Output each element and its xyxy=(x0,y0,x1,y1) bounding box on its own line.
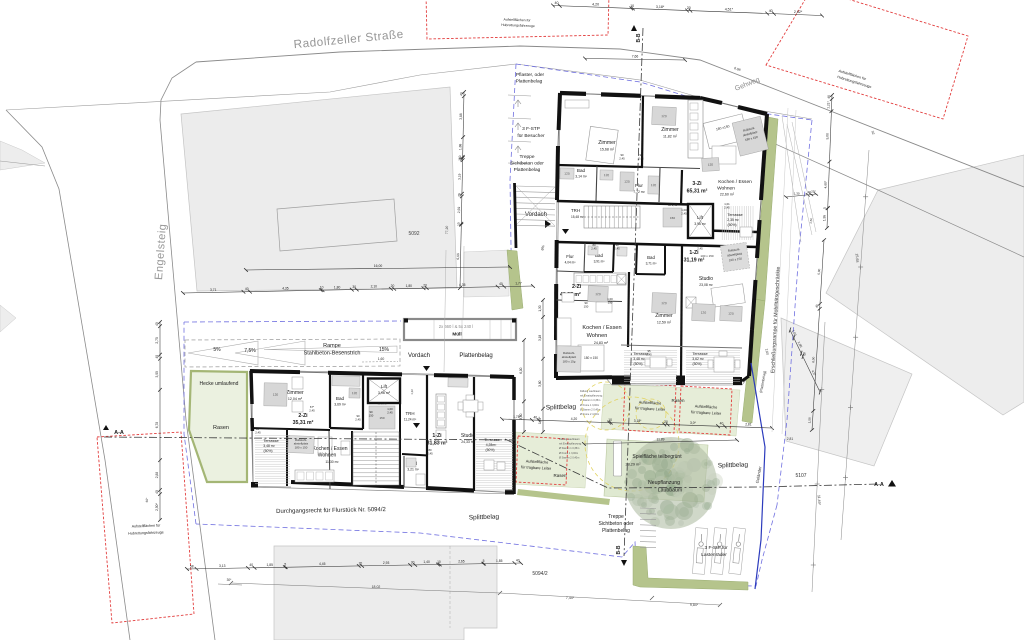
svg-text:A-A: A-A xyxy=(114,430,124,436)
svg-text:40: 40 xyxy=(815,304,819,308)
svg-text:100 x 150: 100 x 150 xyxy=(700,254,714,258)
svg-text:1-Zi: 1-Zi xyxy=(432,433,442,439)
svg-text:Neupflanzung: Neupflanzung xyxy=(648,480,680,486)
svg-text:3,00: 3,00 xyxy=(155,371,159,378)
svg-text:10: 10 xyxy=(320,286,324,290)
svg-text:11,49*: 11,49* xyxy=(817,495,822,506)
svg-text:16,00: 16,00 xyxy=(374,264,383,268)
svg-text:(50%): (50%) xyxy=(727,223,736,227)
svg-text:40: 40 xyxy=(249,563,253,567)
svg-text:5107: 5107 xyxy=(795,473,806,479)
svg-text:2,45: 2,45 xyxy=(255,430,261,434)
svg-text:11,24 m²: 11,24 m² xyxy=(404,418,416,422)
svg-text:120: 120 xyxy=(595,292,601,296)
svg-text:3,48 m²: 3,48 m² xyxy=(633,357,645,361)
svg-text:3,96 m²: 3,96 m² xyxy=(694,222,706,226)
svg-text:150: 150 xyxy=(379,416,384,420)
svg-text:Fällung Laubbaum: Fällung Laubbaum xyxy=(559,438,580,441)
svg-text:für Besucher: für Besucher xyxy=(517,133,545,139)
svg-text:7,5%: 7,5% xyxy=(244,348,256,354)
svg-text:Bad: Bad xyxy=(577,168,586,173)
svg-text:Terrasse: Terrasse xyxy=(692,351,708,356)
svg-text:12,59 m²: 12,59 m² xyxy=(657,321,672,325)
svg-text:4,45: 4,45 xyxy=(319,562,326,566)
svg-text:5%: 5% xyxy=(213,347,221,353)
svg-text:(50%): (50%) xyxy=(263,449,272,453)
svg-text:15%: 15% xyxy=(379,347,390,353)
svg-text:20: 20 xyxy=(359,561,363,565)
svg-text:Ø Stamm 2 0,40m: Ø Stamm 2 0,40m xyxy=(580,408,600,411)
svg-text:3,80: 3,80 xyxy=(538,380,542,386)
svg-text:35,31 m²: 35,31 m² xyxy=(293,420,314,426)
svg-text:150: 150 xyxy=(670,216,675,220)
svg-text:2,45: 2,45 xyxy=(309,408,315,412)
svg-text:3 F-STP: 3 F-STP xyxy=(522,126,540,132)
svg-text:40: 40 xyxy=(155,322,159,326)
svg-text:2,45: 2,45 xyxy=(619,156,625,160)
svg-text:1,30: 1,30 xyxy=(794,191,800,195)
svg-text:7,72 m²: 7,72 m² xyxy=(633,190,645,194)
svg-text:3 F-StP für: 3 F-StP für xyxy=(704,545,728,551)
svg-text:Wohnen: Wohnen xyxy=(717,186,735,192)
svg-text:B-B: B-B xyxy=(636,33,642,42)
svg-text:150: 150 xyxy=(584,304,589,308)
svg-text:20: 20 xyxy=(391,284,395,288)
svg-text:30*: 30* xyxy=(227,578,233,582)
svg-text:Fällung Laubbaum: Fällung Laubbaum xyxy=(580,390,601,393)
svg-text:(50%): (50%) xyxy=(485,448,494,452)
svg-text:120: 120 xyxy=(701,311,707,315)
svg-text:3-Zi: 3-Zi xyxy=(692,181,702,187)
svg-text:120: 120 xyxy=(352,391,358,395)
svg-text:3,19: 3,19 xyxy=(458,173,462,180)
svg-text:(50%): (50%) xyxy=(633,362,642,366)
svg-text:3,14 m²: 3,14 m² xyxy=(575,175,587,179)
svg-text:A-A: A-A xyxy=(874,482,884,488)
svg-text:6,78: 6,78 xyxy=(155,422,159,429)
svg-text:Bad: Bad xyxy=(336,396,345,401)
svg-text:15,68: 15,68 xyxy=(855,253,860,262)
svg-text:1,50: 1,50 xyxy=(807,417,811,424)
svg-text:3,96 m²: 3,96 m² xyxy=(378,391,391,395)
svg-text:120: 120 xyxy=(651,183,657,187)
svg-text:2,75: 2,75 xyxy=(155,337,159,344)
svg-text:1,88: 1,88 xyxy=(458,144,462,151)
svg-text:Zimmer: Zimmer xyxy=(598,140,616,146)
svg-text:mit Ersatzpflanzung:: mit Ersatzpflanzung: xyxy=(559,443,582,446)
svg-text:Ø Krone 2 4,00m: Ø Krone 2 4,00m xyxy=(580,413,599,416)
svg-text:Wohnen: Wohnen xyxy=(318,453,337,459)
svg-text:40: 40 xyxy=(155,355,159,359)
svg-text:180 x 150: 180 x 150 xyxy=(295,446,308,450)
svg-text:10: 10 xyxy=(457,222,461,226)
svg-text:3,21 m²: 3,21 m² xyxy=(407,468,419,472)
svg-text:3,48 m²: 3,48 m² xyxy=(263,444,275,448)
svg-text:5092: 5092 xyxy=(408,231,419,237)
svg-text:4,35: 4,35 xyxy=(459,283,466,287)
svg-text:2,65: 2,65 xyxy=(458,560,465,564)
svg-text:5,00: 5,00 xyxy=(817,268,821,275)
svg-text:11,30 m²: 11,30 m² xyxy=(325,460,339,464)
svg-text:120: 120 xyxy=(728,312,734,316)
svg-text:Stahlbeton-Besenstrich: Stahlbeton-Besenstrich xyxy=(304,351,361,357)
svg-text:58: 58 xyxy=(190,564,194,568)
svg-text:2,10: 2,10 xyxy=(371,285,378,289)
svg-text:40: 40 xyxy=(769,9,773,13)
svg-text:77,20: 77,20 xyxy=(445,226,449,235)
svg-text:120: 120 xyxy=(708,163,714,167)
svg-text:1,30: 1,30 xyxy=(538,305,542,311)
svg-text:4,20: 4,20 xyxy=(592,3,599,7)
svg-text:Spielfläche teilbegrünt: Spielfläche teilbegrünt xyxy=(632,454,682,460)
svg-text:120: 120 xyxy=(661,114,667,118)
svg-text:Splittbelag: Splittbelag xyxy=(718,461,749,469)
svg-text:Plattenbelag: Plattenbelag xyxy=(516,79,543,85)
svg-text:Kochen / Essen: Kochen / Essen xyxy=(582,325,621,331)
svg-text:2,45: 2,45 xyxy=(681,211,687,215)
svg-text:Ø Stamm 1 0,35m: Ø Stamm 1 0,35m xyxy=(559,447,579,450)
svg-text:Zimmer: Zimmer xyxy=(286,390,304,396)
svg-text:3,62 m²: 3,62 m² xyxy=(692,357,704,361)
svg-text:2,81: 2,81 xyxy=(787,437,794,441)
svg-text:180 x 150: 180 x 150 xyxy=(584,356,598,360)
svg-text:Lift: Lift xyxy=(697,215,704,220)
svg-text:1-Zi: 1-Zi xyxy=(689,250,699,256)
svg-text:(50%): (50%) xyxy=(692,362,701,366)
svg-text:3,18*: 3,18* xyxy=(634,419,642,423)
svg-text:2,50*: 2,50* xyxy=(155,502,159,510)
svg-text:3,71 m²: 3,71 m² xyxy=(646,262,657,266)
svg-text:Flur: Flur xyxy=(566,254,574,259)
svg-text:18,02: 18,02 xyxy=(372,585,381,589)
svg-text:3,13: 3,13 xyxy=(219,564,226,568)
svg-text:1,21*: 1,21* xyxy=(826,100,830,109)
svg-text:Sichtbeton oder: Sichtbeton oder xyxy=(510,161,544,167)
svg-text:Müll: Müll xyxy=(452,332,461,337)
svg-text:2,45: 2,45 xyxy=(724,205,730,209)
svg-text:2,45: 2,45 xyxy=(355,417,361,421)
svg-text:Laubbaum: Laubbaum xyxy=(658,488,683,494)
svg-text:Rampe: Rampe xyxy=(323,343,341,349)
svg-text:Hecke umlaufend: Hecke umlaufend xyxy=(200,381,239,387)
svg-text:2,45: 2,45 xyxy=(638,156,644,160)
svg-text:30: 30 xyxy=(352,285,356,289)
svg-text:abstellplatz: abstellplatz xyxy=(562,355,577,359)
svg-text:2,45: 2,45 xyxy=(591,246,597,250)
svg-text:4,04 m²: 4,04 m² xyxy=(565,261,576,265)
svg-text:24,33 m²: 24,33 m² xyxy=(461,440,475,444)
svg-text:2,93: 2,93 xyxy=(383,561,390,565)
svg-text:4,51*: 4,51* xyxy=(725,7,734,11)
svg-text:3,69 m²: 3,69 m² xyxy=(334,403,346,407)
svg-text:2x 660 l & 5x 240 l: 2x 660 l & 5x 240 l xyxy=(439,324,474,329)
svg-text:Plattenbelag: Plattenbelag xyxy=(602,528,630,534)
svg-text:Splittbelag: Splittbelag xyxy=(469,513,500,521)
svg-text:120: 120 xyxy=(564,172,570,176)
svg-text:5,00: 5,00 xyxy=(825,133,829,140)
svg-text:10: 10 xyxy=(458,155,462,159)
svg-text:3,00: 3,00 xyxy=(519,413,523,419)
svg-text:1,95: 1,95 xyxy=(822,215,826,222)
svg-text:22,60 m²: 22,60 m² xyxy=(720,193,735,197)
svg-text:1,77: 1,77 xyxy=(515,282,522,286)
svg-text:120: 120 xyxy=(661,301,667,305)
svg-text:15,68 m²: 15,68 m² xyxy=(600,148,615,152)
svg-text:4,28m²: 4,28m² xyxy=(486,443,497,447)
svg-text:40: 40 xyxy=(155,490,159,494)
svg-text:31,83 m²: 31,83 m² xyxy=(427,441,448,447)
svg-text:40: 40 xyxy=(245,287,249,291)
svg-text:7,66: 7,66 xyxy=(632,55,639,59)
svg-text:2,45: 2,45 xyxy=(646,352,652,356)
svg-text:20: 20 xyxy=(423,284,427,288)
svg-text:31,19 m²: 31,19 m² xyxy=(684,258,705,264)
svg-text:Rasen: Rasen xyxy=(213,425,229,431)
svg-text:7,44*: 7,44* xyxy=(566,596,575,600)
svg-text:3,88: 3,88 xyxy=(459,113,463,120)
svg-text:8,00: 8,00 xyxy=(811,356,815,363)
svg-text:2,45: 2,45 xyxy=(387,410,393,414)
svg-text:3,71: 3,71 xyxy=(210,288,217,292)
svg-text:6,00: 6,00 xyxy=(519,367,523,373)
svg-text:1,20: 1,20 xyxy=(410,389,414,395)
svg-text:15,48 m²: 15,48 m² xyxy=(571,215,584,219)
svg-text:40: 40 xyxy=(533,416,537,420)
svg-text:1,78*: 1,78* xyxy=(538,416,542,424)
svg-text:Kochen / Essen: Kochen / Essen xyxy=(718,179,752,185)
svg-text:5: 5 xyxy=(483,559,485,563)
svg-text:23,08 m²: 23,08 m² xyxy=(699,283,713,287)
svg-text:90 2,45: 90 2,45 xyxy=(378,402,387,406)
svg-text:9,84*: 9,84* xyxy=(690,603,699,607)
svg-text:Plattenbelag: Plattenbelag xyxy=(514,167,541,173)
svg-text:2,82*: 2,82* xyxy=(794,10,803,14)
svg-text:28,29 m²: 28,29 m² xyxy=(626,463,642,467)
svg-text:150: 150 xyxy=(369,413,374,417)
svg-text:Ø Krone 1 3,00m: Ø Krone 1 3,00m xyxy=(580,404,599,407)
svg-text:40: 40 xyxy=(499,282,503,286)
svg-text:3,0*: 3,0* xyxy=(690,421,697,425)
svg-text:Flur: Flur xyxy=(635,183,643,188)
svg-text:65,31 m²: 65,31 m² xyxy=(687,189,708,195)
svg-text:Rasen: Rasen xyxy=(671,398,685,403)
svg-text:B-B: B-B xyxy=(616,545,622,554)
svg-text:4,60*: 4,60* xyxy=(823,180,827,189)
svg-text:TRH: TRH xyxy=(571,208,580,213)
svg-text:26: 26 xyxy=(457,193,461,197)
svg-text:12,04 m²: 12,04 m² xyxy=(288,397,303,401)
svg-text:Zimmer: Zimmer xyxy=(661,127,679,133)
svg-text:3,91 m²: 3,91 m² xyxy=(594,260,605,264)
svg-text:40: 40 xyxy=(459,92,463,96)
svg-text:Plattenbelag: Plattenbelag xyxy=(459,353,492,359)
svg-text:150: 150 xyxy=(608,300,613,304)
svg-text:2,45: 2,45 xyxy=(614,246,620,250)
svg-text:Zimmer: Zimmer xyxy=(655,313,673,319)
svg-text:4,20: 4,20 xyxy=(571,417,578,421)
svg-text:1,80: 1,80 xyxy=(406,284,413,288)
svg-text:60*: 60* xyxy=(145,497,149,503)
svg-text:10: 10 xyxy=(608,418,612,422)
svg-text:1,40: 1,40 xyxy=(423,560,430,564)
svg-text:Pflaster, oder: Pflaster, oder xyxy=(516,72,545,78)
svg-text:Terrasse: Terrasse xyxy=(727,212,743,217)
svg-text:2-Zi: 2-Zi xyxy=(572,284,582,290)
svg-text:Ø Stamm 1 0,35m: Ø Stamm 1 0,35m xyxy=(580,399,600,402)
svg-text:5: 5 xyxy=(284,563,286,567)
svg-text:5: 5 xyxy=(823,207,827,209)
svg-text:1,80: 1,80 xyxy=(334,285,341,289)
svg-text:20: 20 xyxy=(664,420,668,424)
svg-text:Splittbelag: Splittbelag xyxy=(546,403,577,411)
svg-text:180 x 15g: 180 x 15g xyxy=(563,360,576,364)
svg-text:10: 10 xyxy=(437,560,441,564)
svg-text:11,89: 11,89 xyxy=(656,437,664,441)
svg-text:4,35: 4,35 xyxy=(282,286,289,290)
svg-text:Vordach: Vordach xyxy=(408,353,430,359)
svg-text:10: 10 xyxy=(630,4,634,8)
svg-text:mit Ersatzpflanzung:: mit Ersatzpflanzung: xyxy=(580,395,603,398)
svg-text:40: 40 xyxy=(827,95,831,99)
svg-text:Ø Stamm 2 0,40m: Ø Stamm 2 0,40m xyxy=(559,456,579,459)
svg-text:24,83 m²: 24,83 m² xyxy=(594,341,609,345)
svg-text:120: 120 xyxy=(273,393,279,397)
svg-text:Wohnen: Wohnen xyxy=(587,333,608,339)
svg-text:2,88: 2,88 xyxy=(155,472,159,479)
svg-text:2,81: 2,81 xyxy=(745,423,752,427)
svg-text:TRH: TRH xyxy=(405,411,414,416)
svg-text:40: 40 xyxy=(555,1,559,5)
svg-text:3,18*: 3,18* xyxy=(656,5,665,9)
svg-text:Lift: Lift xyxy=(381,384,388,389)
svg-text:Ø Krone 1 3,00m: Ø Krone 1 3,00m xyxy=(559,452,578,455)
svg-text:120: 120 xyxy=(624,180,630,184)
svg-text:Bad: Bad xyxy=(647,255,655,260)
svg-text:11,82 m²: 11,82 m² xyxy=(663,135,678,139)
svg-text:1,85: 1,85 xyxy=(266,563,273,567)
svg-text:6,00: 6,00 xyxy=(456,253,460,260)
svg-text:3,18: 3,18 xyxy=(538,335,542,341)
svg-text:2,59: 2,59 xyxy=(457,207,461,214)
svg-text:Treppe: Treppe xyxy=(608,514,624,520)
svg-text:2-Zi: 2-Zi xyxy=(298,413,308,419)
svg-text:120: 120 xyxy=(604,173,610,177)
svg-text:Studio: Studio xyxy=(461,433,475,439)
svg-text:40: 40 xyxy=(720,422,724,426)
svg-text:1,85: 1,85 xyxy=(496,559,503,563)
svg-text:Terrasse: Terrasse xyxy=(263,438,279,443)
svg-text:5094/2: 5094/2 xyxy=(532,571,548,577)
svg-text:40: 40 xyxy=(516,559,520,563)
svg-text:30: 30 xyxy=(411,560,415,564)
svg-text:2,35 m²: 2,35 m² xyxy=(727,218,739,222)
svg-text:Lastenräder: Lastenräder xyxy=(701,552,727,558)
svg-text:Studio: Studio xyxy=(699,276,713,282)
svg-text:Rasen: Rasen xyxy=(553,473,567,478)
svg-text:1,60: 1,60 xyxy=(378,357,385,361)
svg-text:2,45: 2,45 xyxy=(427,451,433,455)
svg-text:20: 20 xyxy=(687,6,691,10)
svg-text:Treppe: Treppe xyxy=(519,154,534,160)
svg-text:2,45: 2,45 xyxy=(697,246,703,250)
svg-text:90 2,45: 90 2,45 xyxy=(668,203,677,207)
svg-text:Sichtbeton oder: Sichtbeton oder xyxy=(598,521,633,527)
